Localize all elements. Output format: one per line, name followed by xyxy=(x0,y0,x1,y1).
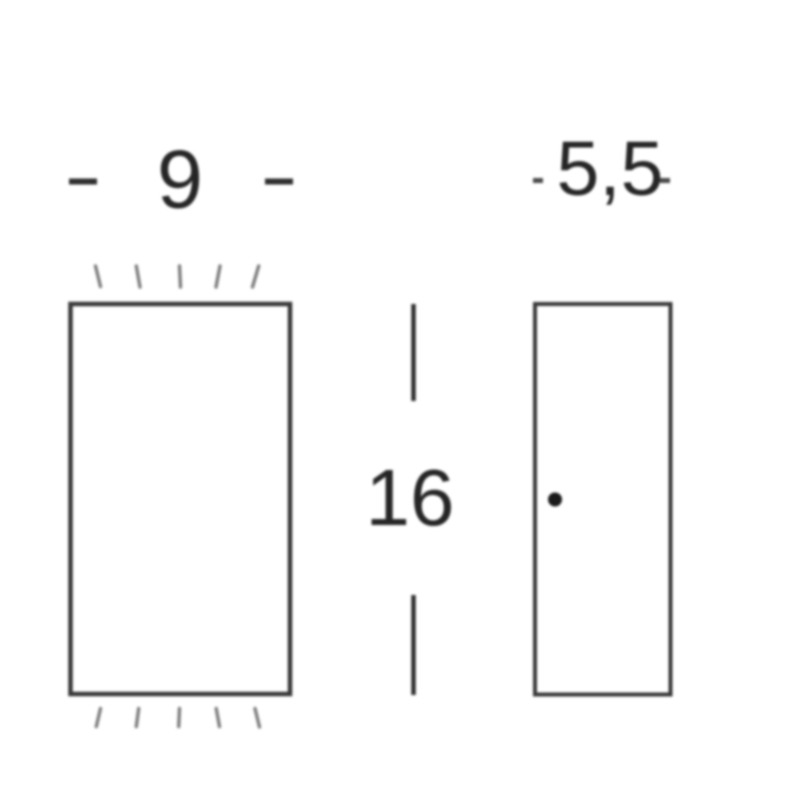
svg-text:9: 9 xyxy=(157,133,203,226)
svg-text:16: 16 xyxy=(366,453,455,542)
svg-text:5,5: 5,5 xyxy=(556,126,663,212)
